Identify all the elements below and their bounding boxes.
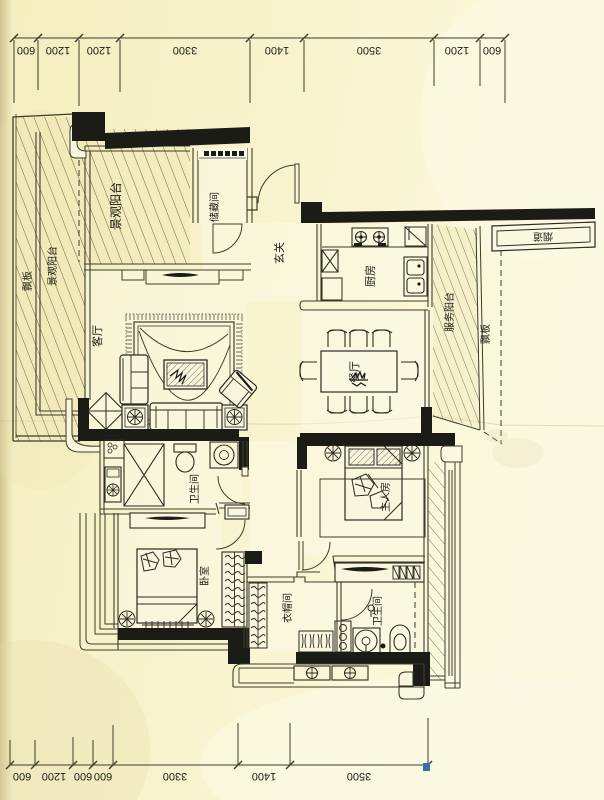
svg-text:客厅: 客厅 <box>90 325 104 347</box>
svg-text:600: 600 <box>94 770 112 782</box>
svg-text:卫生间: 卫生间 <box>371 596 384 626</box>
svg-text:600: 600 <box>13 770 31 782</box>
svg-text:飘板: 飘板 <box>479 324 492 344</box>
svg-text:1400: 1400 <box>265 44 289 56</box>
svg-text:600: 600 <box>483 44 501 56</box>
svg-text:烟道: 烟道 <box>533 230 553 243</box>
svg-text:1400: 1400 <box>252 770 276 782</box>
svg-text:1200: 1200 <box>46 44 70 56</box>
svg-text:卫生间: 卫生间 <box>188 474 201 504</box>
svg-text:3500: 3500 <box>357 44 381 56</box>
svg-text:飘板: 飘板 <box>21 271 34 291</box>
svg-text:服务阳台: 服务阳台 <box>443 292 456 332</box>
svg-text:玄关: 玄关 <box>272 242 286 264</box>
svg-text:餐厅: 餐厅 <box>347 361 361 383</box>
svg-text:3300: 3300 <box>173 44 197 56</box>
svg-text:储藏间: 储藏间 <box>208 192 221 222</box>
svg-text:3300: 3300 <box>163 770 187 782</box>
svg-text:厨房: 厨房 <box>364 265 377 287</box>
svg-text:3500: 3500 <box>347 770 371 782</box>
svg-text:600: 600 <box>17 44 35 56</box>
svg-text:1200: 1200 <box>87 44 111 56</box>
svg-text:景观阳台: 景观阳台 <box>108 182 123 230</box>
svg-text:主人房: 主人房 <box>379 482 392 512</box>
svg-text:景观阳台: 景观阳台 <box>46 246 59 286</box>
svg-text:卧室: 卧室 <box>198 566 211 586</box>
svg-text:1200: 1200 <box>42 770 66 782</box>
svg-text:衣帽间: 衣帽间 <box>281 593 294 623</box>
svg-text:600: 600 <box>74 770 92 782</box>
svg-text:1200: 1200 <box>445 44 469 56</box>
